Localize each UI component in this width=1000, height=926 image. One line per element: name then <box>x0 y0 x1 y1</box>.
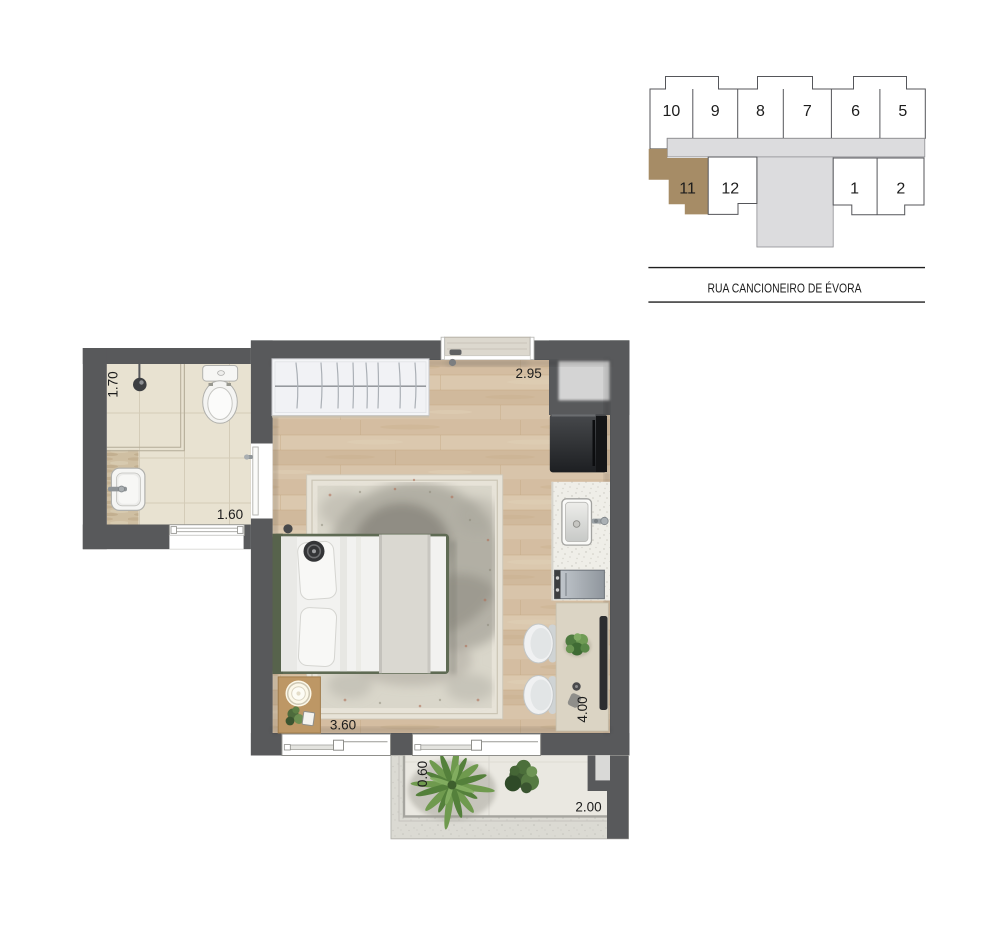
svg-text:2.95: 2.95 <box>515 366 541 381</box>
svg-text:7: 7 <box>803 103 812 120</box>
svg-text:1.60: 1.60 <box>217 507 243 522</box>
svg-text:6: 6 <box>851 103 860 120</box>
svg-text:5: 5 <box>898 103 907 120</box>
svg-text:10: 10 <box>663 103 681 120</box>
svg-text:8: 8 <box>756 103 765 120</box>
svg-text:1.70: 1.70 <box>106 371 121 397</box>
svg-text:9: 9 <box>711 103 720 120</box>
svg-text:3.60: 3.60 <box>330 718 356 733</box>
svg-text:2: 2 <box>896 181 905 198</box>
svg-text:0.60: 0.60 <box>415 761 430 787</box>
svg-text:RUA CANCIONEIRO DE ÉVORA: RUA CANCIONEIRO DE ÉVORA <box>708 281 862 296</box>
svg-text:1: 1 <box>850 181 859 198</box>
svg-text:12: 12 <box>721 181 739 198</box>
svg-text:2.00: 2.00 <box>575 800 601 815</box>
svg-text:11: 11 <box>679 181 696 198</box>
svg-text:4.00: 4.00 <box>575 696 590 722</box>
